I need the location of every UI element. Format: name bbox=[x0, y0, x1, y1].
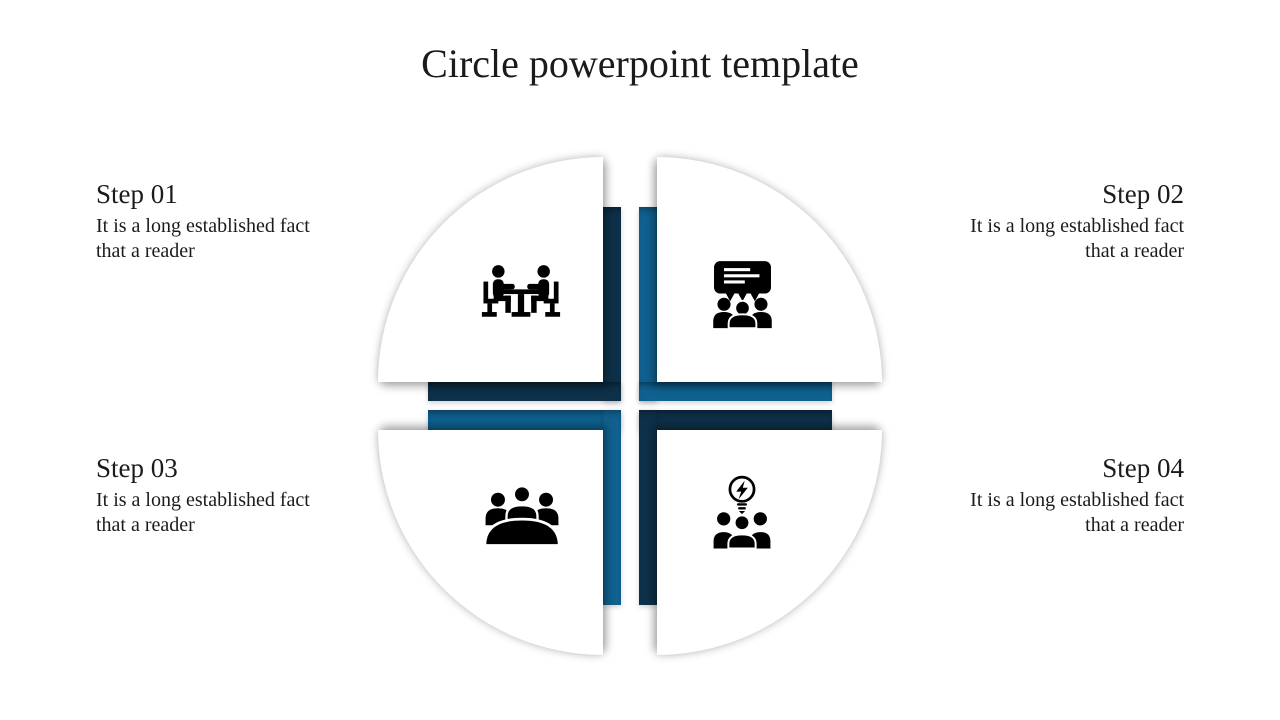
quadrant-step-04 bbox=[657, 430, 882, 655]
quadrant-step-02 bbox=[657, 157, 882, 382]
cross-bar-bottom-right-horizontal bbox=[639, 410, 832, 430]
cross-bar-bottom-left-horizontal bbox=[428, 410, 621, 430]
cross-bar-top-right-vertical bbox=[639, 207, 657, 401]
cross-bar-bottom-right-vertical bbox=[639, 410, 657, 605]
quadrant-step-01 bbox=[378, 157, 603, 382]
cross-bar-top-left-horizontal bbox=[428, 382, 621, 401]
cross-bar-top-left-vertical bbox=[603, 207, 621, 401]
team-idea-bulb-icon bbox=[705, 467, 779, 552]
cross-bar-bottom-left-vertical bbox=[603, 410, 621, 605]
round-table-meeting-icon bbox=[478, 485, 566, 547]
cross-bar-top-right-horizontal bbox=[639, 382, 832, 401]
quadrant-step-03 bbox=[378, 430, 603, 655]
meeting-table-icon bbox=[478, 261, 564, 324]
circle-diagram bbox=[0, 0, 1280, 720]
audience-message-icon bbox=[704, 251, 781, 336]
